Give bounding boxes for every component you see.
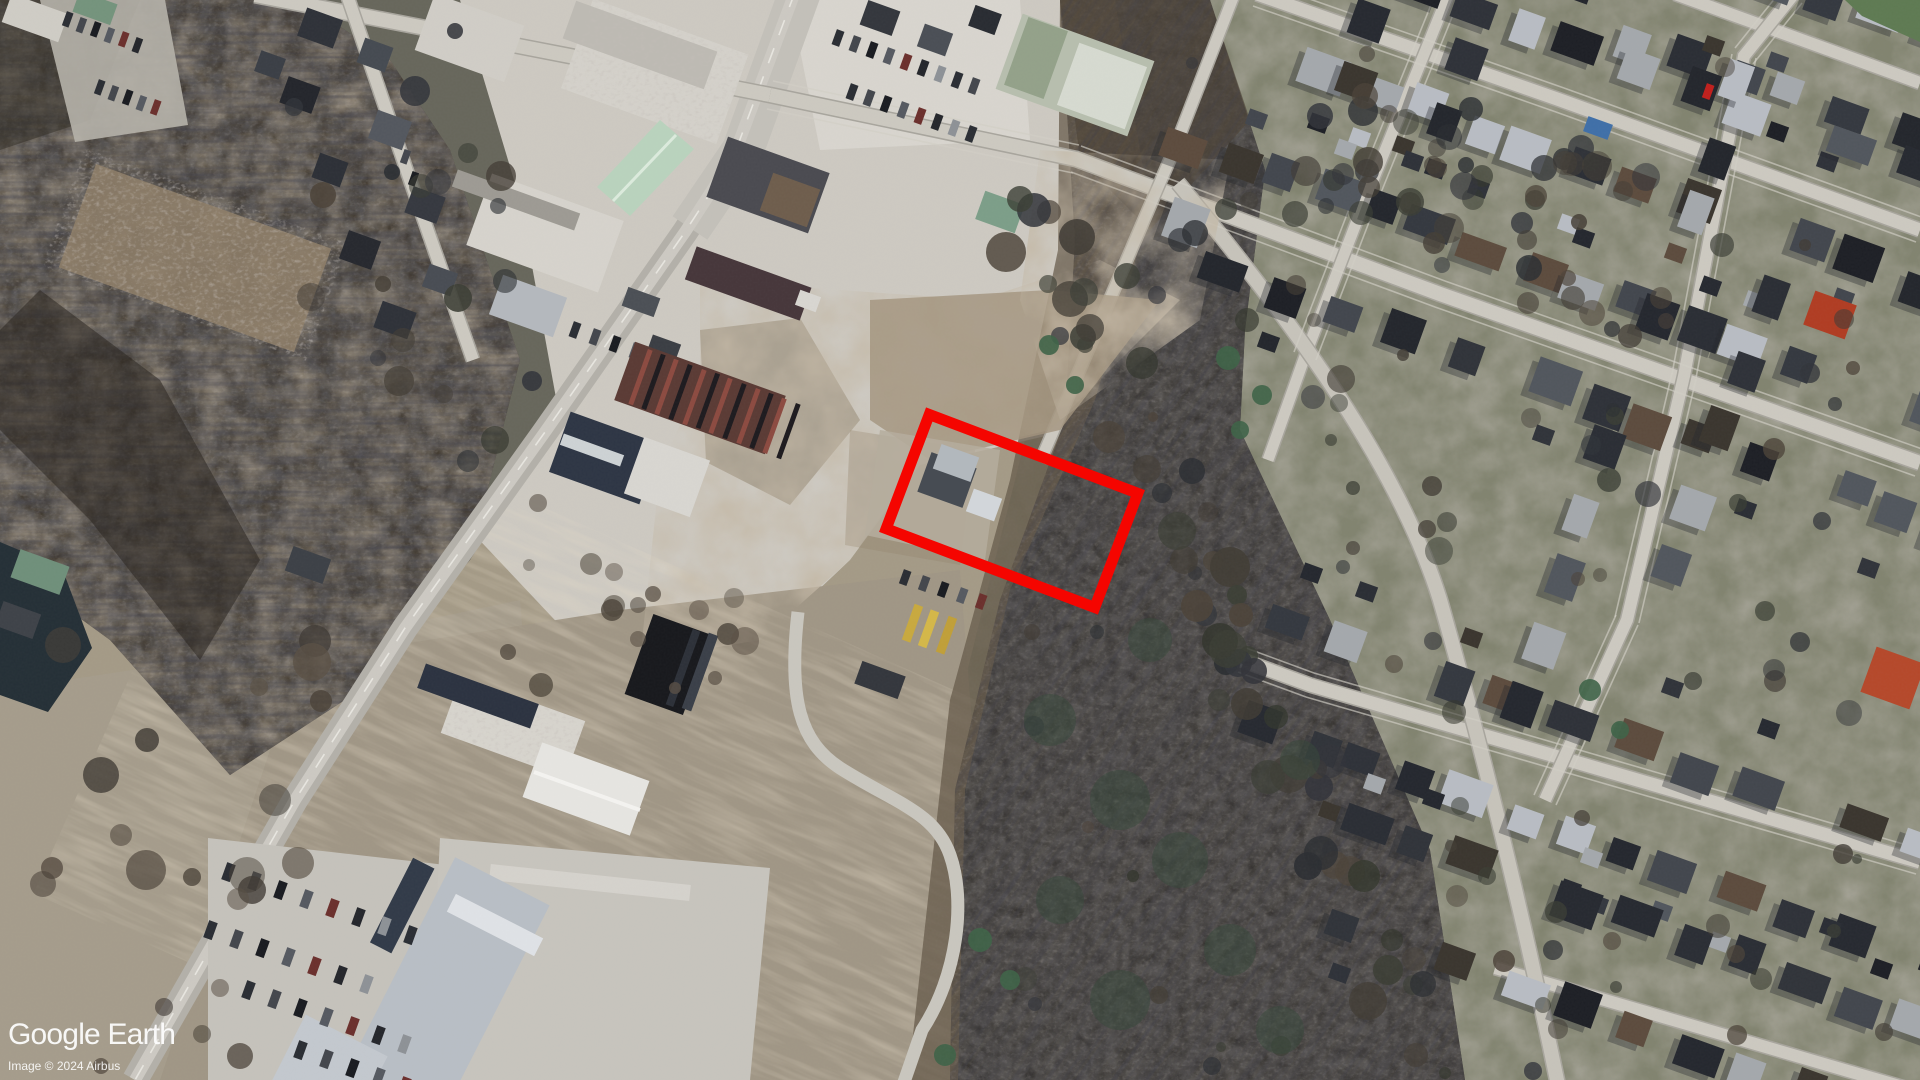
svg-text:Google Earth: Google Earth (8, 1018, 175, 1051)
svg-text:Image © 2024 Airbus: Image © 2024 Airbus (8, 1059, 120, 1073)
